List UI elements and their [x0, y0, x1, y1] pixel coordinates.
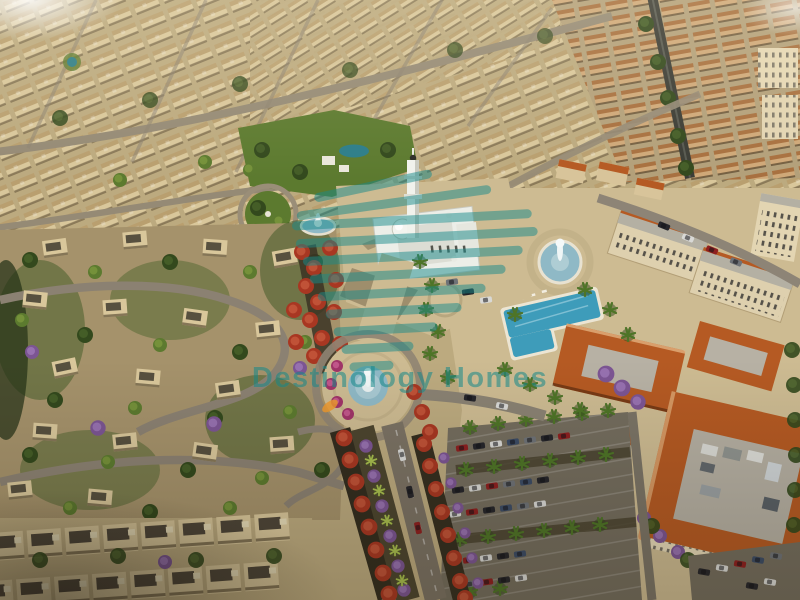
- atmosphere-overlays: [0, 0, 800, 600]
- watermark-text: Destinology Homes: [0, 362, 800, 395]
- aerial-render: Destinology Homes: [0, 0, 800, 600]
- scene-canvas: [0, 0, 800, 600]
